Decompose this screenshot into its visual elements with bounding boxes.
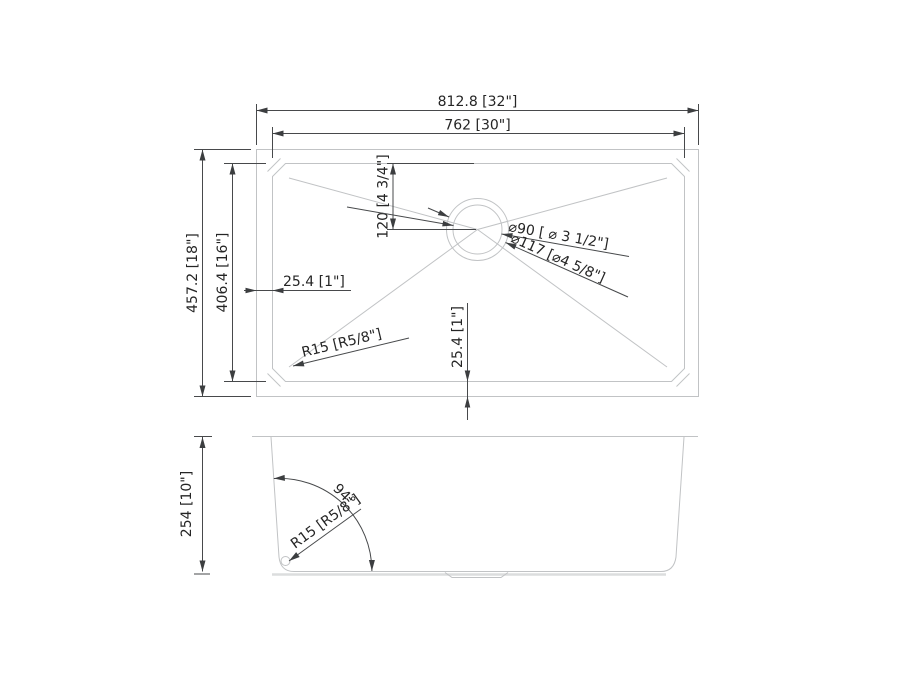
side-view: 254 [10"] 94° R15 [R5/8"] (179, 437, 698, 578)
corner-detail-bottom-right (677, 374, 690, 387)
dim-height: 254 [10"] (179, 437, 212, 575)
dim-text-rim-bottom: 25.4 [1"] (450, 306, 466, 368)
bowl-profile-outline (271, 437, 684, 572)
leader-corner-radius: R15 [R5/8"] (293, 326, 409, 366)
dim-rim-bottom: 25.4 [1"] (450, 303, 470, 420)
leader-line (347, 207, 454, 226)
dim-text-corner-radius: R15 [R5/8"] (300, 326, 383, 361)
dim-text-inner-width: 762 [30"] (444, 118, 510, 134)
arrow-icon (465, 371, 471, 382)
dim-text-drain-offset: 120 [4 3/4"] (376, 154, 392, 238)
radius-center-mark (281, 557, 290, 566)
dim-text-overall-width: 812.8 [32"] (438, 94, 518, 110)
drawing-svg: 812.8 [32"] 762 [30"] 457.2 [18"] 406.4 … (0, 0, 907, 680)
corner-detail-top-right (677, 159, 690, 172)
dim-text-bottom-corner-radius: R15 [R5/8"] (288, 491, 363, 552)
corner-detail-bottom-left (268, 374, 281, 387)
dim-inner-width: 762 [30"] (273, 118, 685, 159)
arrow-icon (246, 288, 257, 294)
arrow-icon (465, 397, 471, 408)
sink-technical-drawing: 812.8 [32"] 762 [30"] 457.2 [18"] 406.4 … (0, 0, 907, 680)
drain-slope-line-br (478, 230, 668, 368)
top-view: 812.8 [32"] 762 [30"] 457.2 [18"] 406.4 … (185, 94, 699, 420)
arrow-icon (273, 288, 284, 294)
sink-outer-rim-outline (257, 150, 699, 397)
dim-text-rim-left: 25.4 [1"] (283, 274, 345, 290)
leader-bottom-corner-radius: R15 [R5/8"] (288, 491, 363, 561)
drain-slope-line-tr (478, 178, 668, 230)
dim-inner-depth: 406.4 [16"] (215, 164, 266, 382)
top-view-geometry (257, 150, 699, 397)
dim-drain-offset: 120 [4 3/4"] (376, 154, 477, 238)
corner-detail-top-left (268, 159, 281, 172)
dim-text-inner-depth: 406.4 [16"] (215, 233, 231, 313)
dim-rim-left: 25.4 [1"] (244, 274, 351, 293)
dim-text-overall-depth: 457.2 [18"] (185, 233, 201, 313)
side-view-geometry (252, 437, 698, 578)
dim-text-height: 254 [10"] (179, 471, 195, 537)
